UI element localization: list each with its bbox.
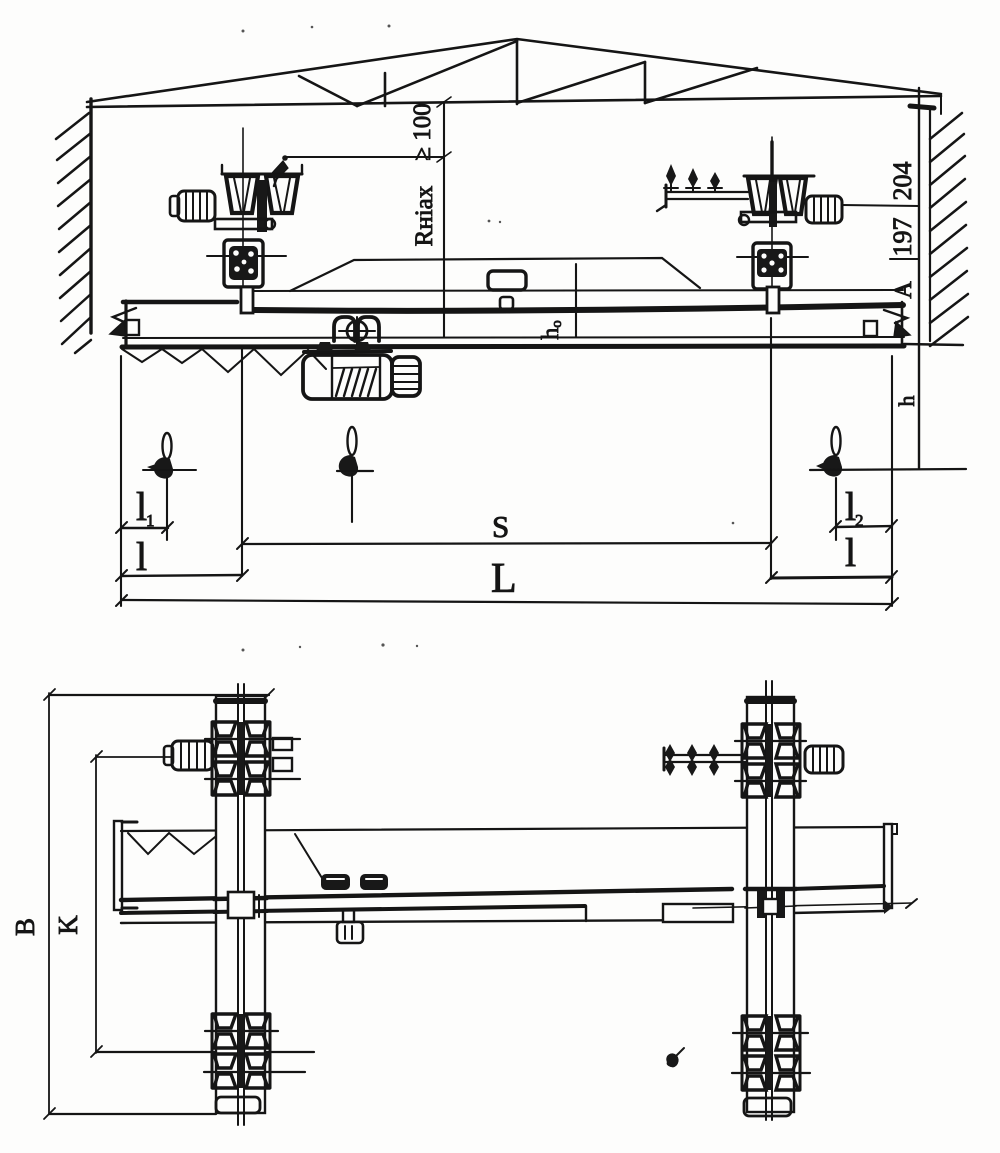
svg-text:S: S	[492, 509, 509, 544]
svg-text:B: B	[10, 918, 40, 936]
svg-text:197: 197	[888, 218, 917, 257]
svg-text:Rнiax: Rнiax	[411, 185, 438, 246]
svg-text:2: 2	[855, 511, 864, 530]
svg-text:1: 1	[146, 511, 155, 530]
svg-text:l: l	[845, 530, 856, 575]
svg-text:204: 204	[888, 162, 917, 201]
svg-text:l: l	[136, 534, 147, 579]
svg-text:L: L	[491, 556, 517, 602]
svg-text:ho: ho	[538, 320, 565, 340]
svg-text:A: A	[891, 281, 917, 299]
svg-text:h: h	[894, 396, 919, 407]
svg-text:≥ 100: ≥ 100	[409, 103, 436, 160]
svg-text:K: K	[53, 915, 83, 935]
